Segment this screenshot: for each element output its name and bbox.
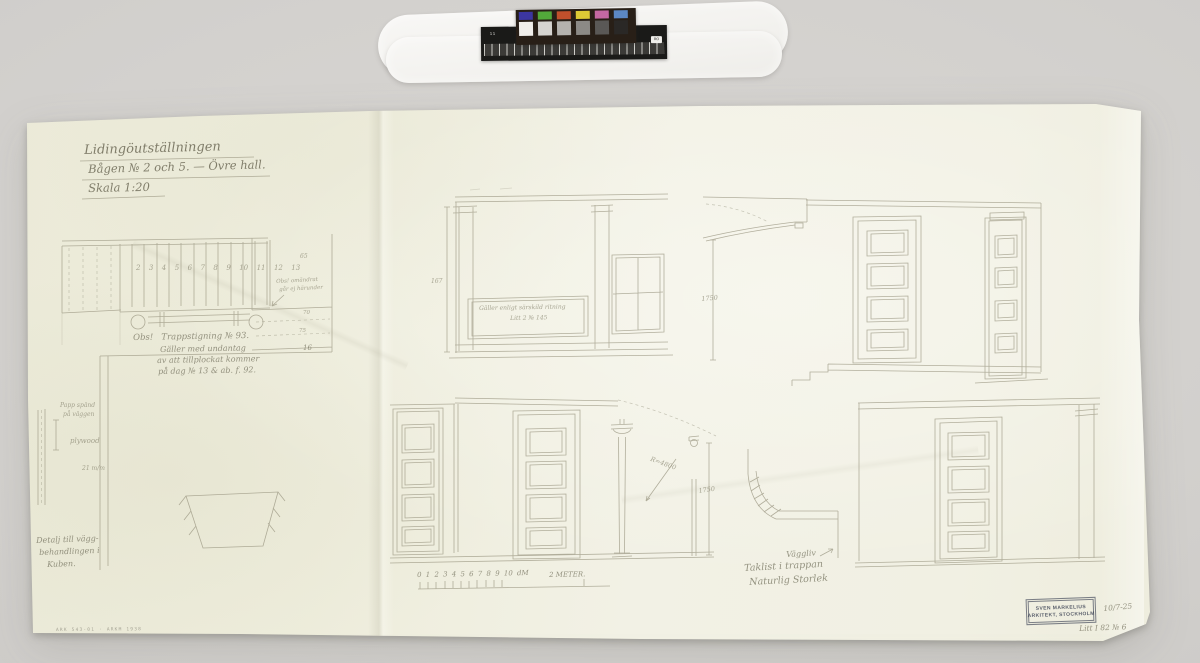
drawing-sheet: Lidingöutställningen Bågen № 2 och 5. — …: [0, 0, 1200, 663]
dim-1750-top: 1750: [701, 294, 718, 303]
margin-litt: Litt I 82 № 6: [1079, 622, 1127, 633]
stair-note-line-1: Obs! Trappstigning № 93.: [133, 331, 249, 343]
title-line-3: Skala 1:20: [88, 180, 150, 195]
stair-note-line-2: Gäller med undantag: [160, 344, 246, 354]
stamp-title: ARKITEKT, STOCKHOLM: [1027, 610, 1094, 618]
cove-label-vaggliv: Väggliv: [786, 548, 816, 559]
wall-note-thickness: 21 m/m: [82, 465, 105, 472]
plan-number-70: 70: [303, 310, 310, 316]
panel-note-line-2: Litt 2 № 145: [510, 314, 548, 322]
architect-stamp-border: SVEN MARKELIUS ARKITEKT, STOCKHOLM: [1028, 599, 1095, 623]
plan-number-16: 16: [303, 344, 312, 352]
plan-number-65: 65: [300, 253, 308, 260]
wall-note-line-2: på väggen: [63, 411, 94, 418]
wall-note-line-1: Papp spänd: [60, 402, 95, 409]
sheet-shadow-wrap: Lidingöutställningen Bågen № 2 och 5. — …: [0, 0, 1200, 663]
stair-note-line-4: på dag № 13 & ab. f. 92.: [158, 365, 256, 376]
stair-note-line-3: av att tillplockat kommer: [157, 354, 259, 365]
wall-note-plywood: plywood: [70, 437, 100, 445]
plan-number-75: 75: [299, 328, 306, 334]
photo-stage: 11 RO: [0, 0, 1200, 663]
plan-step-numbers: 2 3 4 5 6 7 8 9 10 11 12 13: [136, 264, 300, 272]
dim-167: 167: [431, 278, 442, 285]
archive-number: ARK 543-01 · ARKM 1938: [56, 627, 142, 633]
detail-note-line-3: Kuben.: [47, 559, 76, 569]
scale-bar-meter: 2 METER.: [549, 570, 585, 579]
architect-stamp: SVEN MARKELIUS ARKITEKT, STOCKHOLM: [1026, 597, 1097, 625]
